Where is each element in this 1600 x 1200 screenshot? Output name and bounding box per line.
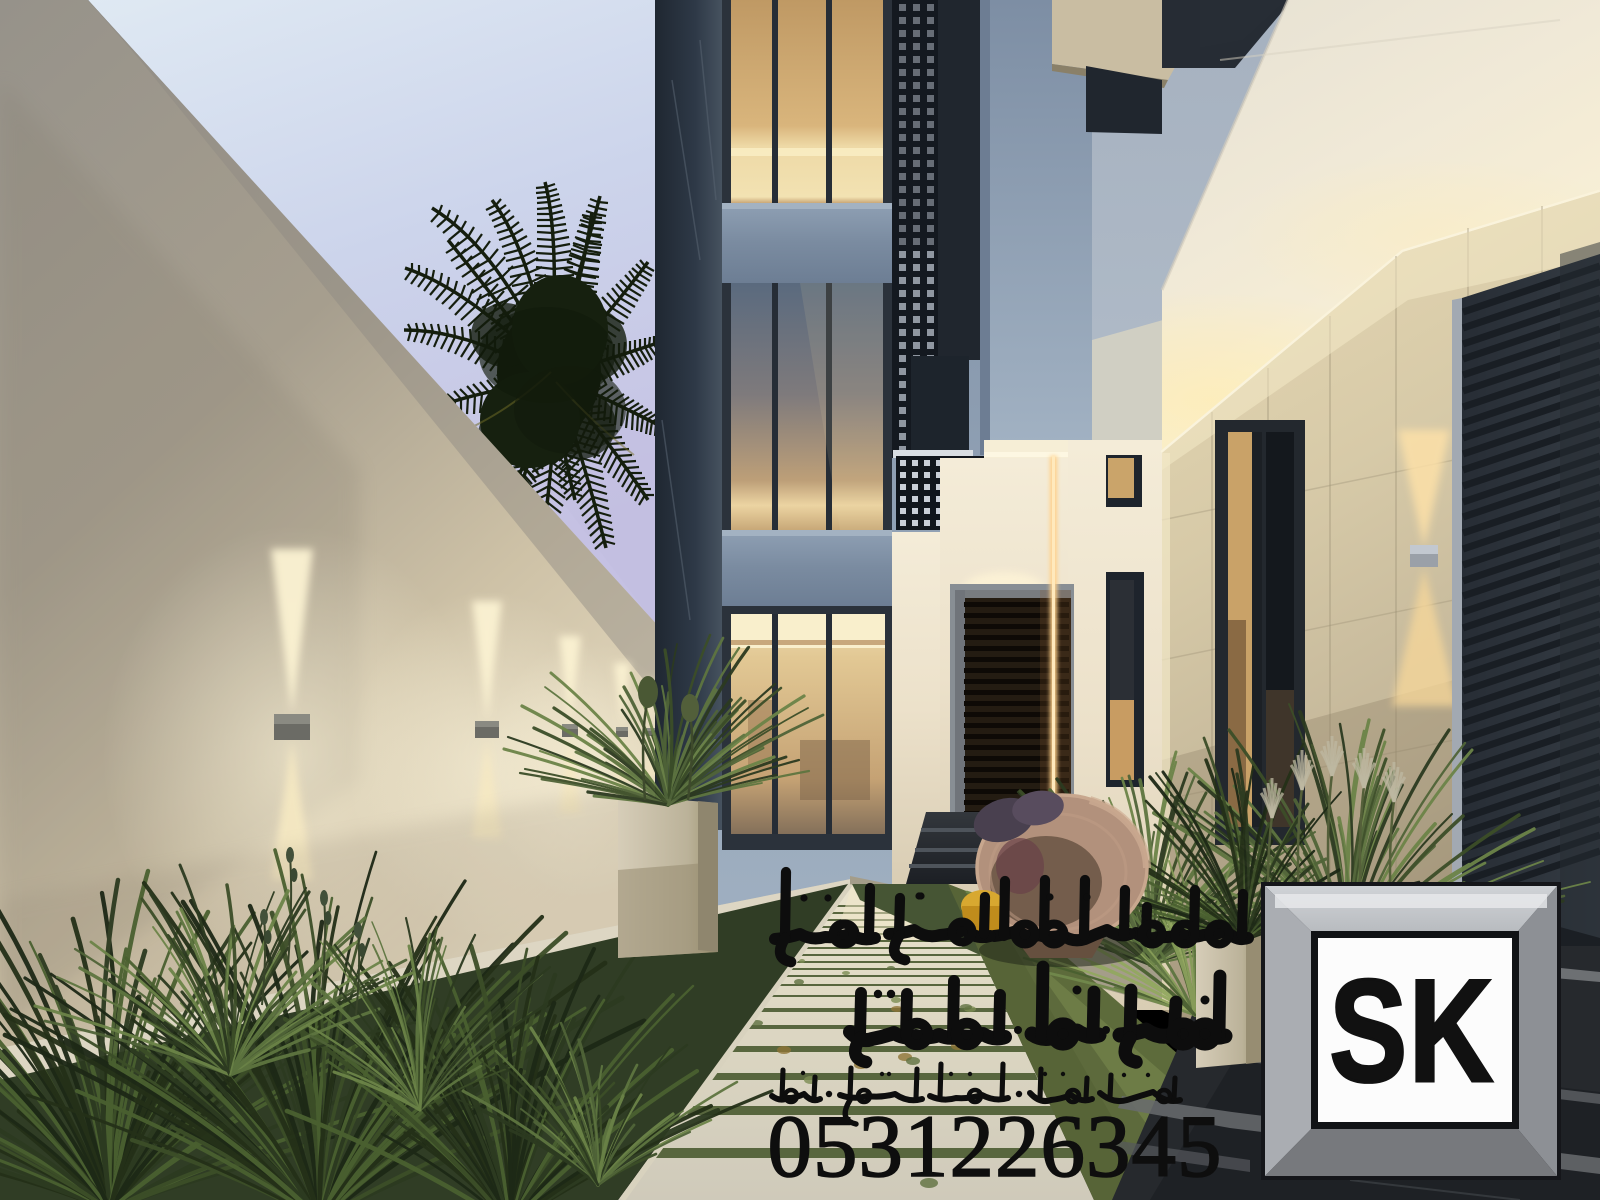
svg-text:SK: SK — [1329, 950, 1494, 1113]
svg-text:0531226345: 0531226345 — [768, 1098, 1223, 1196]
